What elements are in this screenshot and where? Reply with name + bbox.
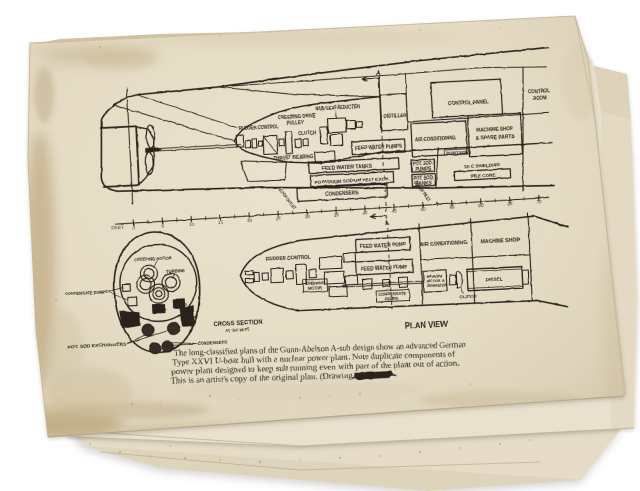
svg-text:A: A (376, 70, 381, 77)
svg-text:TANKS: TANKS (416, 181, 433, 188)
svg-text:50: 50 (420, 207, 426, 212)
svg-text:70: 70 (536, 199, 542, 204)
svg-text:65: 65 (507, 201, 513, 206)
svg-text:20: 20 (246, 218, 253, 223)
svg-text:TURBINE: TURBINE (166, 268, 186, 275)
svg-text:A: A (385, 220, 390, 227)
svg-text:PUMPS: PUMPS (415, 166, 432, 173)
svg-text:10: 10 (189, 221, 195, 226)
svg-text:35: 35 (334, 212, 340, 217)
svg-text:FEET: FEET (112, 225, 126, 231)
svg-text:15: 15 (218, 220, 224, 225)
svg-text:TANK: TANK (182, 319, 193, 325)
svg-text:60: 60 (478, 203, 484, 208)
svg-text:CLUTCH: CLUTCH (298, 130, 317, 137)
svg-text:PUMP: PUMP (154, 308, 167, 314)
svg-text:40: 40 (363, 210, 369, 215)
svg-text:30: 30 (305, 214, 311, 219)
svg-text:DIESEL: DIESEL (486, 276, 503, 282)
svg-text:55: 55 (449, 205, 455, 210)
svg-text:TANK: TANK (124, 320, 135, 326)
svg-text:CLUTCH: CLUTCH (459, 294, 476, 300)
svg-text:PULLEY: PULLEY (287, 120, 305, 127)
svg-text:25: 25 (275, 216, 282, 221)
svg-text:MOTOR: MOTOR (308, 285, 322, 291)
svg-text:45: 45 (392, 208, 398, 213)
svg-text:CONTROL: CONTROL (528, 88, 550, 95)
svg-text:ROOM: ROOM (533, 95, 547, 102)
svg-text:PUMPS: PUMPS (384, 296, 398, 302)
svg-text:DISTILLER: DISTILLER (383, 113, 407, 120)
